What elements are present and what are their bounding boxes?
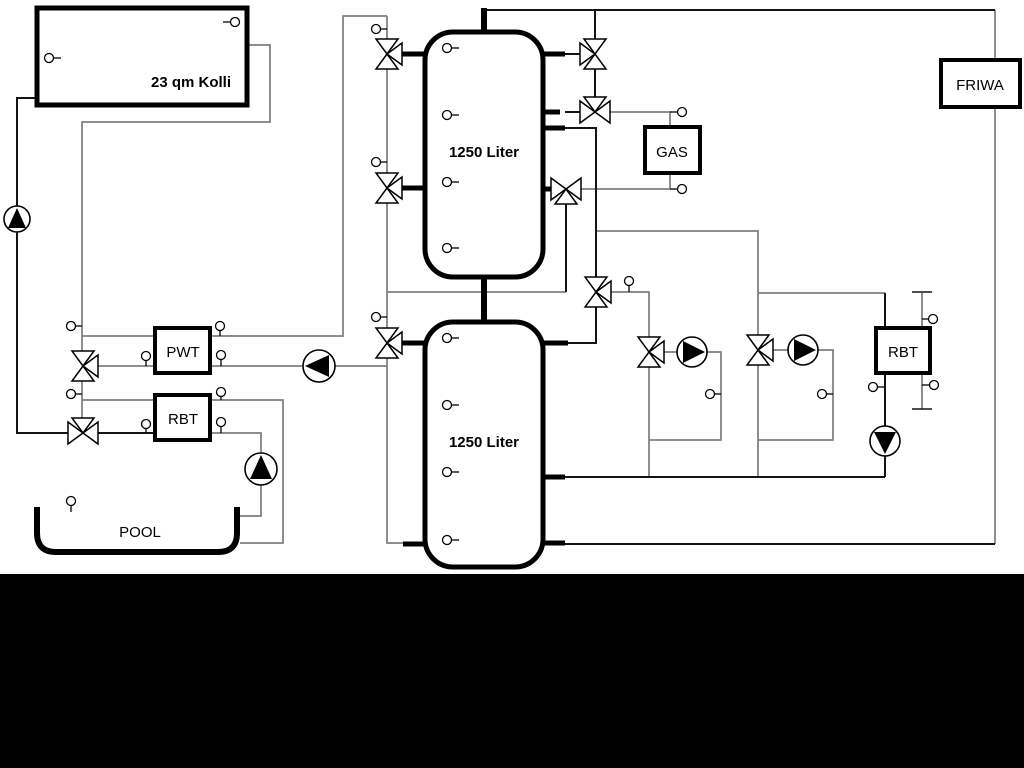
friwa-label: FRIWA [956, 77, 1004, 94]
pump-pwt-charge-icon [303, 350, 335, 382]
solar-collector-label: 23 qm Kolli [151, 74, 231, 91]
buffer-tank-2-label: 1250 Liter [449, 434, 519, 451]
rbt-right-label: RBT [888, 344, 918, 361]
pump-heating-group2-icon [788, 335, 818, 365]
schematic-screenshot: 23 qm Kolli 1250 Liter 1250 Liter GAS PW… [0, 0, 1024, 768]
heating-schematic-diagram: 23 qm Kolli 1250 Liter 1250 Liter GAS PW… [0, 0, 1024, 768]
pump-pool-icon [245, 453, 277, 485]
pwt-label: PWT [166, 344, 199, 361]
buffer-tank-1-label: 1250 Liter [449, 144, 519, 161]
pump-solar-icon [4, 206, 30, 232]
rbt-left-label: RBT [168, 411, 198, 428]
pool-label: POOL [119, 524, 161, 541]
gas-boiler-label: GAS [656, 144, 688, 161]
pump-rbt-right-icon [870, 426, 900, 456]
pump-heating-group1-icon [677, 337, 707, 367]
bottom-black-band [0, 574, 1024, 768]
